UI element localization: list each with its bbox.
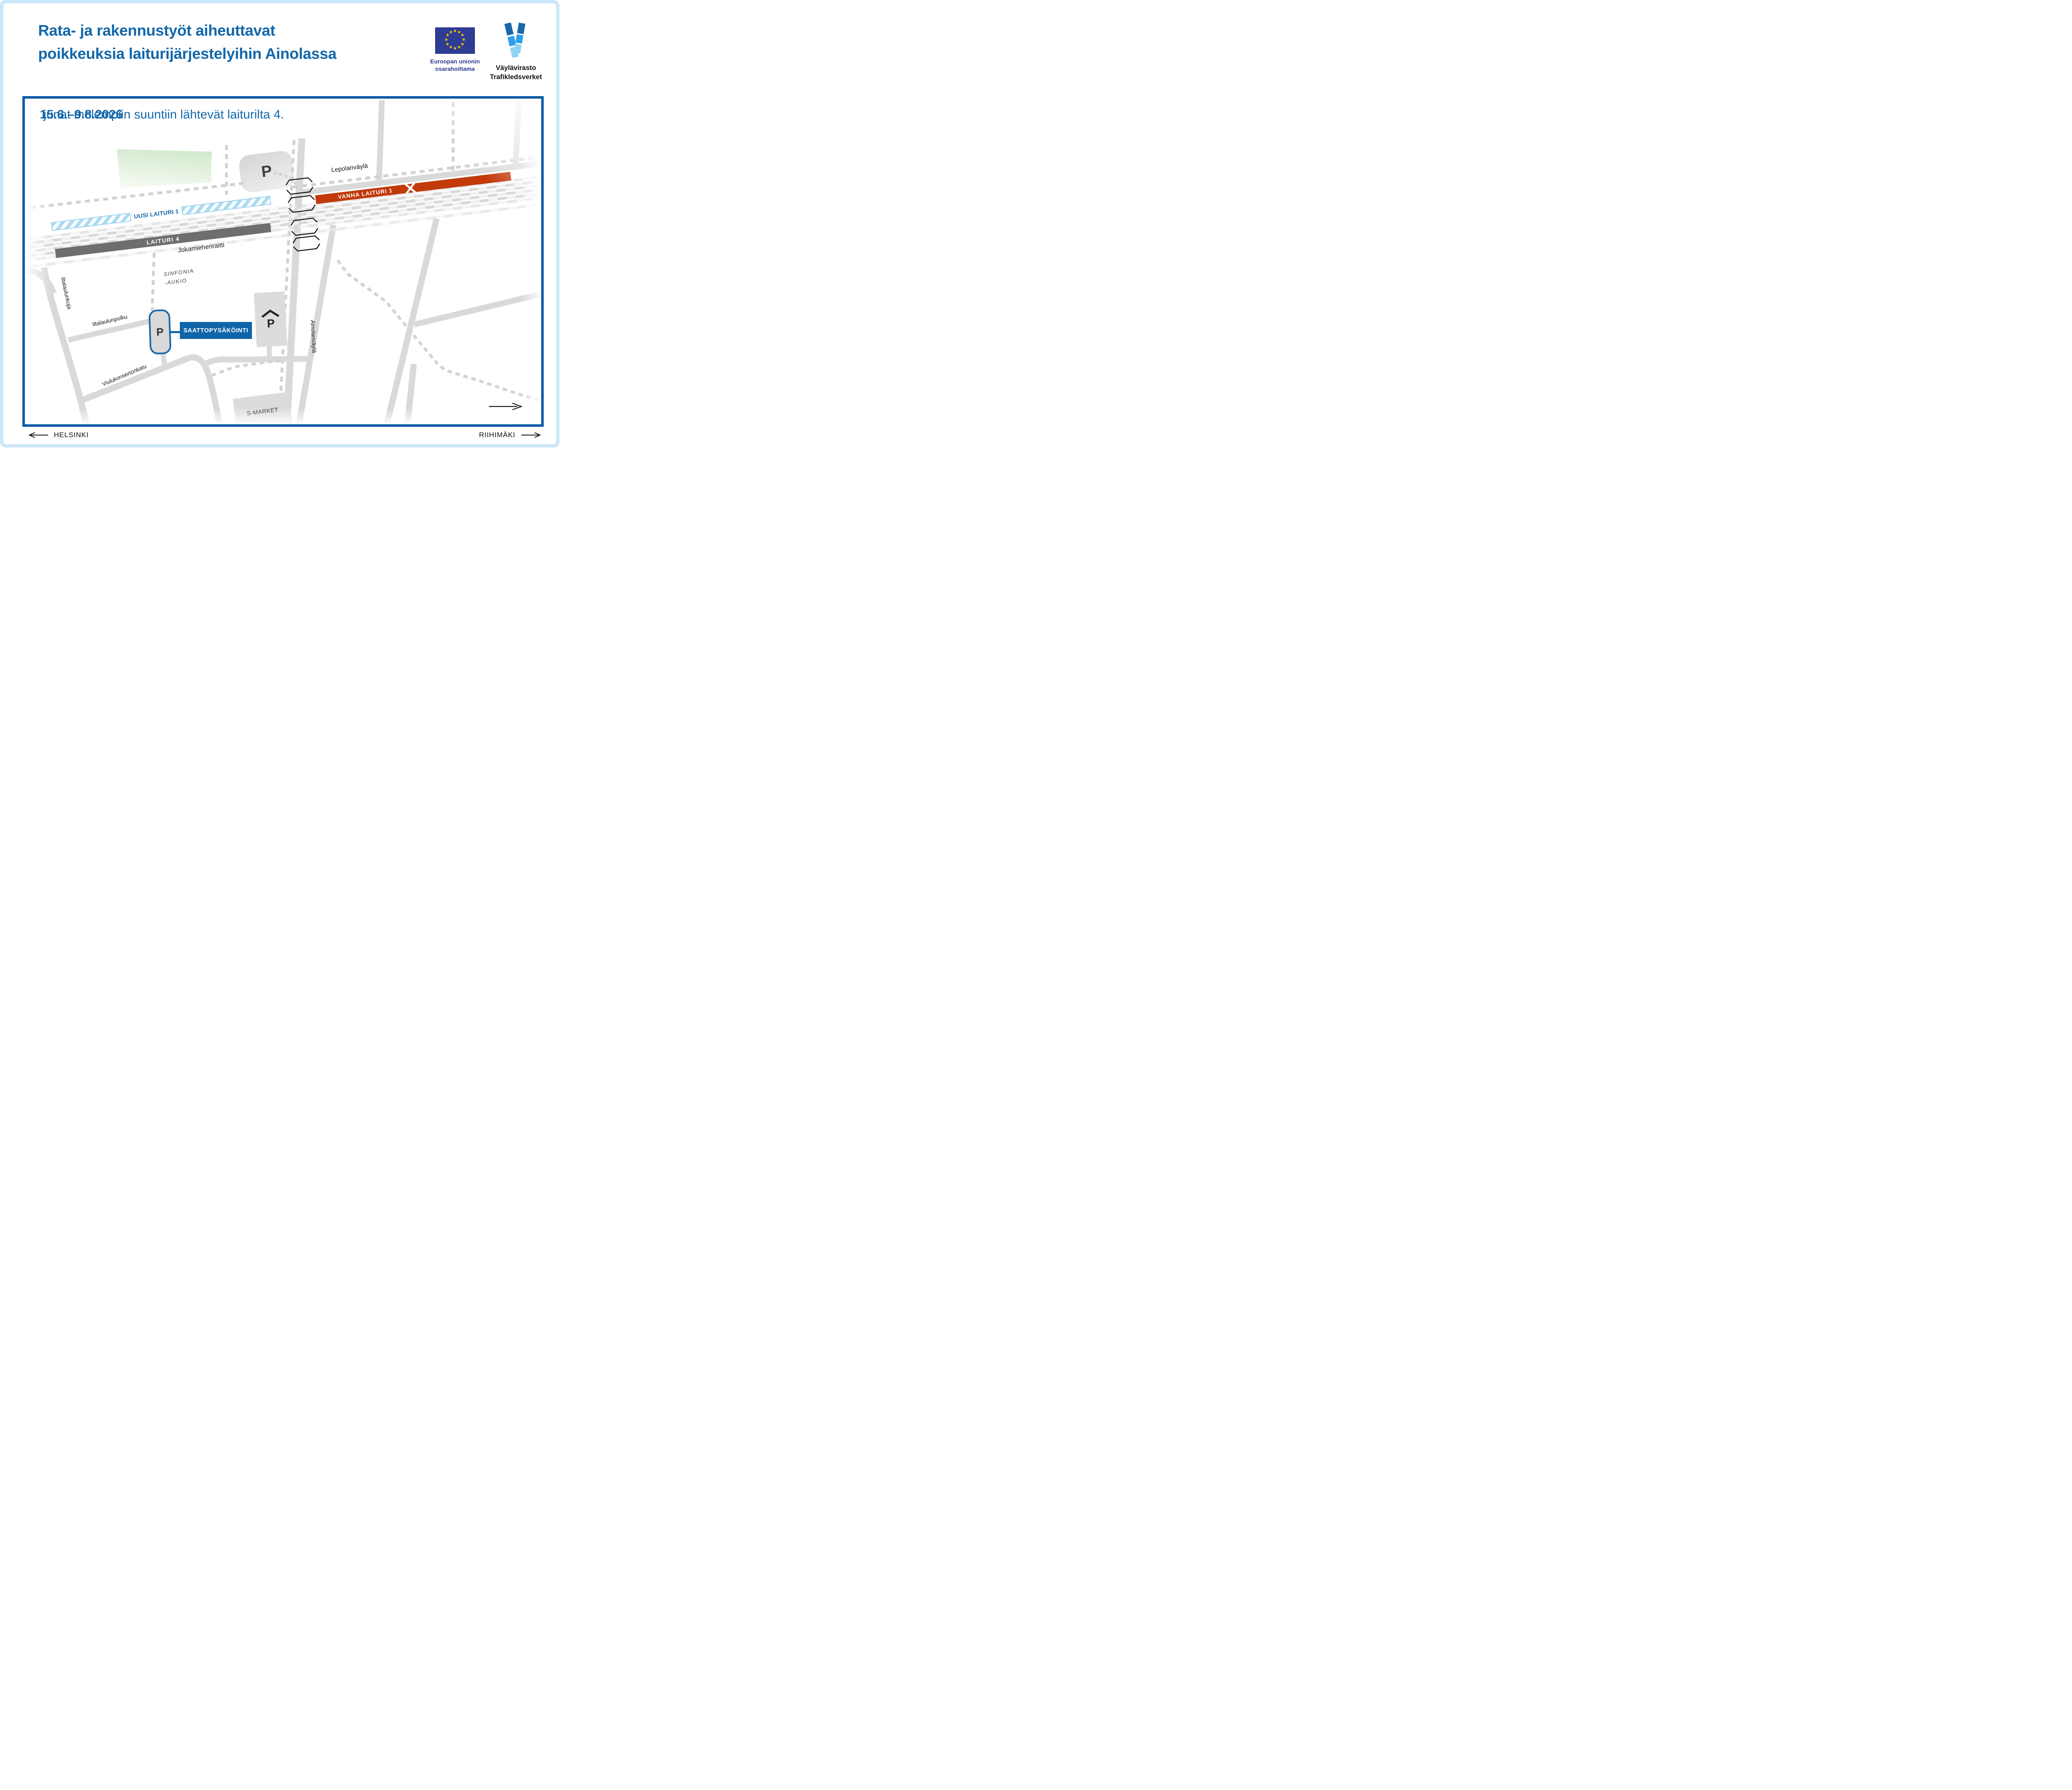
vaylavirasto-v-icon [503, 22, 529, 59]
label-connector-line [170, 331, 181, 333]
platform-uusi-laituri-1-label: UUSI LAITURI 1 [130, 207, 182, 222]
eu-flag-icon: ★★ ★★ ★★ ★★ ★★ ★★ [435, 27, 475, 54]
vaylavirasto-name: Väylävirasto Trafikledsverket [485, 63, 547, 82]
right-arrow-icon [520, 432, 543, 438]
direction-east-label: RIIHIMÄKI [479, 431, 516, 439]
dropoff-parking-label: SAATTOPYSÄKÖINTI [184, 327, 249, 334]
sinfonia-aukio-label: SINFONIA -AUKIO [163, 267, 196, 288]
eu-funding-logo: ★★ ★★ ★★ ★★ ★★ ★★ Euroopan unionin osara… [429, 27, 481, 73]
direction-west: HELSINKI [27, 431, 89, 439]
dropoff-parking-label-box: SAATTOPYSÄKÖINTI [180, 322, 252, 339]
parking-garage: P [254, 291, 288, 347]
underpass-bracket [287, 194, 315, 203]
page-title-line2: poikkeuksia laiturijärjestelyihin Ainola… [38, 42, 336, 65]
garage-parking-letter: P [266, 317, 275, 330]
covered-parking-icon: P [261, 309, 281, 329]
direction-west-label: HELSINKI [54, 431, 89, 439]
dropoff-parking-lot: P [148, 309, 172, 355]
closed-x-icon [404, 181, 418, 195]
poster-page: Rata- ja rakennustyöt aiheuttavat poikke… [0, 0, 559, 447]
left-arrow-icon [27, 432, 49, 438]
underpass-bracket [293, 243, 321, 252]
page-title-line1: Rata- ja rakennustyöt aiheuttavat [38, 19, 336, 42]
direction-east: RIIHIMÄKI [479, 431, 543, 439]
parking-letter: P [156, 325, 164, 339]
smarket-label: S-MARKET [247, 406, 279, 416]
vaylavirasto-logo: Väylävirasto Trafikledsverket [485, 22, 547, 82]
page-title: Rata- ja rakennustyöt aiheuttavat poikke… [38, 19, 336, 65]
east-direction-arrow-icon [488, 402, 525, 411]
eu-caption: Euroopan unionin osarahoittama [429, 58, 481, 73]
station-map: 15.6.–9.8.2026junat molempiin suuntiin l… [22, 96, 544, 427]
